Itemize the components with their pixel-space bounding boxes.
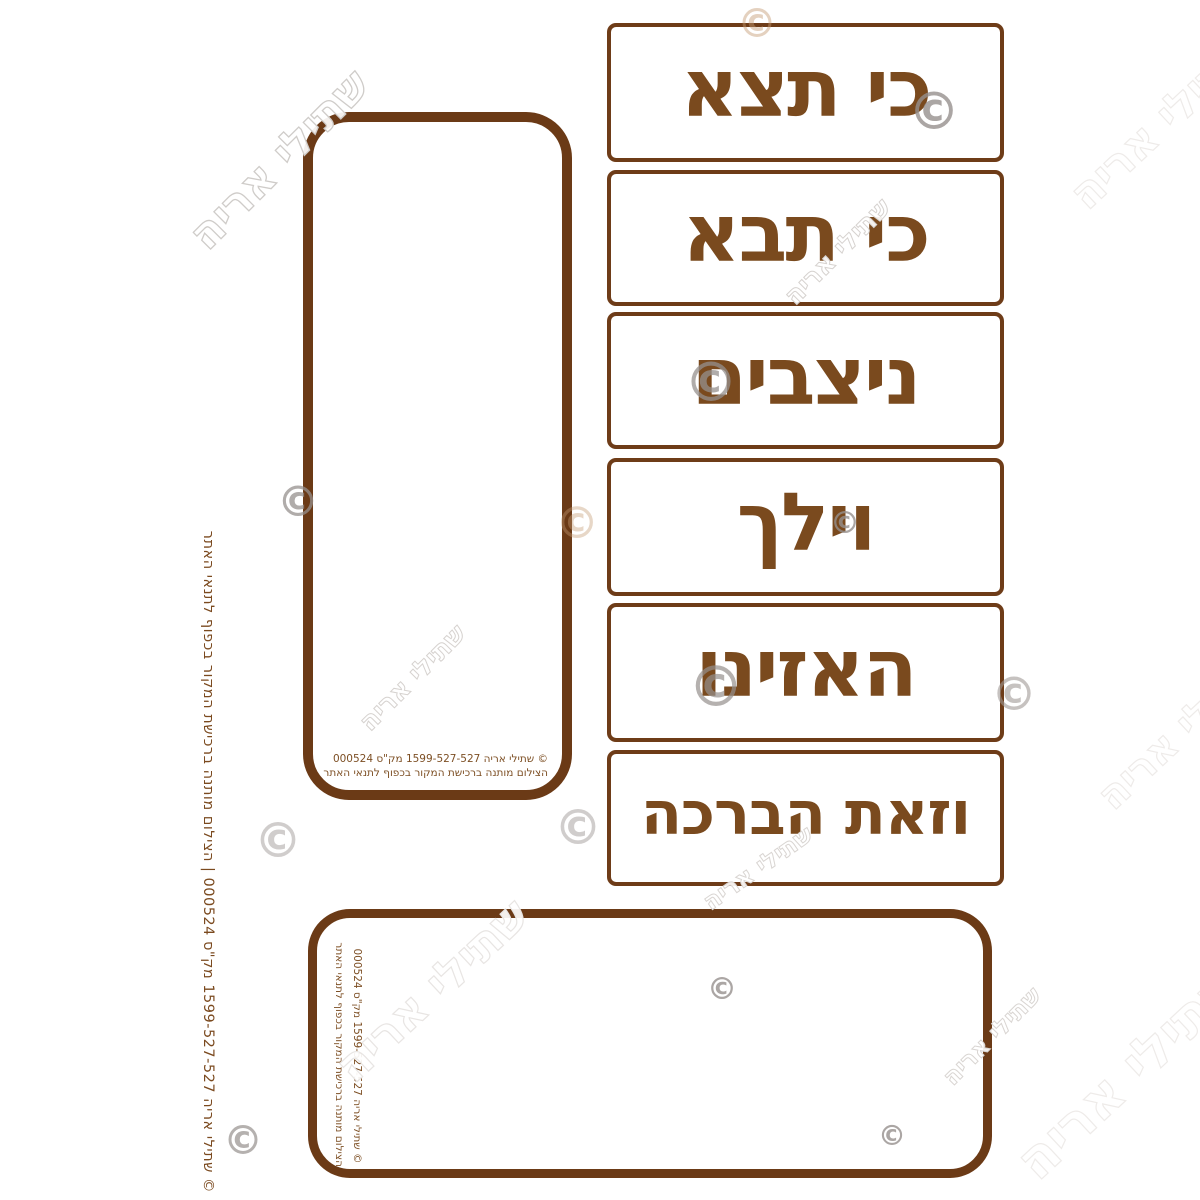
copyright-logo-icon: © — [223, 1121, 263, 1161]
label-box-nitzavim: ניצבים — [607, 312, 1004, 449]
credit-line-2: הצילום מותנה ברכישת המקור בכפוף לתנאי הא… — [323, 766, 548, 780]
label-box-ki-tavo: כי תבא — [607, 170, 1004, 306]
bottombox-credit-line-1: © שתילי אריה 1599-527-527 מק"ס 000524 — [348, 945, 362, 1167]
watermark-text: שתילי אריה — [1063, 26, 1200, 217]
watermark-text: שתילי אריה — [1007, 955, 1200, 1190]
parsha-label: ניצבים — [691, 337, 919, 425]
bottom-cutout-box — [308, 909, 992, 1178]
credit-line-1: © שתילי אריה 1599-527-527 מק"ס 000524 — [323, 752, 548, 766]
label-box-haazinu: האזינו — [607, 603, 1004, 742]
copyright-logo-icon: © — [554, 804, 602, 852]
parsha-label: האזינו — [695, 629, 916, 717]
parsha-label: כי תבא — [682, 194, 928, 282]
bottombox-credit-line-2: הצילום מותנה ברכישת המקור בכפוף לתנאי הא… — [330, 945, 344, 1167]
label-box-vezot-habracha: וזאת הברכה — [607, 750, 1004, 886]
parsha-label: וילך — [737, 483, 875, 571]
parsha-label: כי תצא — [681, 49, 931, 137]
printable-sheet: © שתילי אריה 1599-527-527 מק"ס 000524 הצ… — [0, 0, 1200, 1200]
copyright-logo-icon: © — [254, 817, 302, 865]
tall-cutout-box — [303, 112, 572, 800]
label-box-ki-tetze: כי תצא — [607, 23, 1004, 162]
parsha-label: וזאת הברכה — [641, 784, 970, 852]
label-box-vayelech: וילך — [607, 458, 1004, 596]
side-credit-strip: © שתילי אריה 1599-527-527 מק"ס 000524 | … — [195, 543, 215, 1193]
tallbox-credit: © שתילי אריה 1599-527-527 מק"ס 000524 הצ… — [323, 752, 548, 780]
watermark-text: שתילי אריה — [1091, 643, 1200, 817]
